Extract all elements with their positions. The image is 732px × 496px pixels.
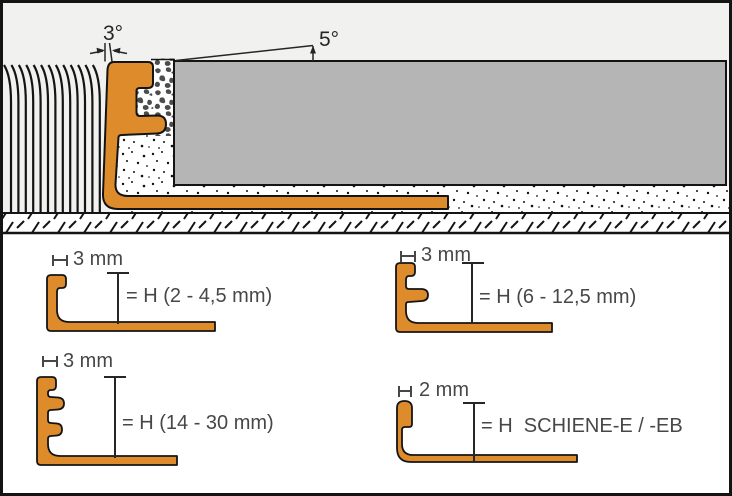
height-dimension-tick [462,262,484,264]
width-dimension-bracket [52,255,68,266]
height-dimension-line [471,262,473,323]
width-dimension-bracket [42,356,58,367]
height-range-label: = H (2 - 4,5 mm) [126,286,272,306]
height-range-label: = H (6 - 12,5 mm) [479,287,636,307]
profile-variant-panel-2: 3 mm = H (6 - 12,5 mm) [367,235,729,347]
schiene-profile-diagram: 3° 5° 3 mm = H (2 - 4,5 mm) 3 mm = H (6 … [0,0,732,496]
width-label: 3 mm [73,249,123,269]
profile-variant-panel-4: 2 mm = H SCHIENE-E / -EB [367,345,729,493]
height-dimension-line [114,376,116,458]
width-label: 3 mm [63,351,113,371]
height-range-label: = H (14 - 30 mm) [122,413,274,433]
height-dimension-line [117,272,119,324]
tile [174,61,726,185]
profile-variant-panel-3: 3 mm = H (14 - 30 mm) [3,345,369,493]
height-dimension-line [473,402,475,462]
angle-label-wall: 3° [103,23,123,44]
angle-label-tile: 5° [319,29,339,50]
installation-cross-section: 3° 5° [0,0,732,235]
substrate-hatch [3,213,729,233]
profile-variant-panel-1: 3 mm = H (2 - 4,5 mm) [3,235,369,347]
height-range-label: = H SCHIENE-E / -EB [481,416,683,436]
